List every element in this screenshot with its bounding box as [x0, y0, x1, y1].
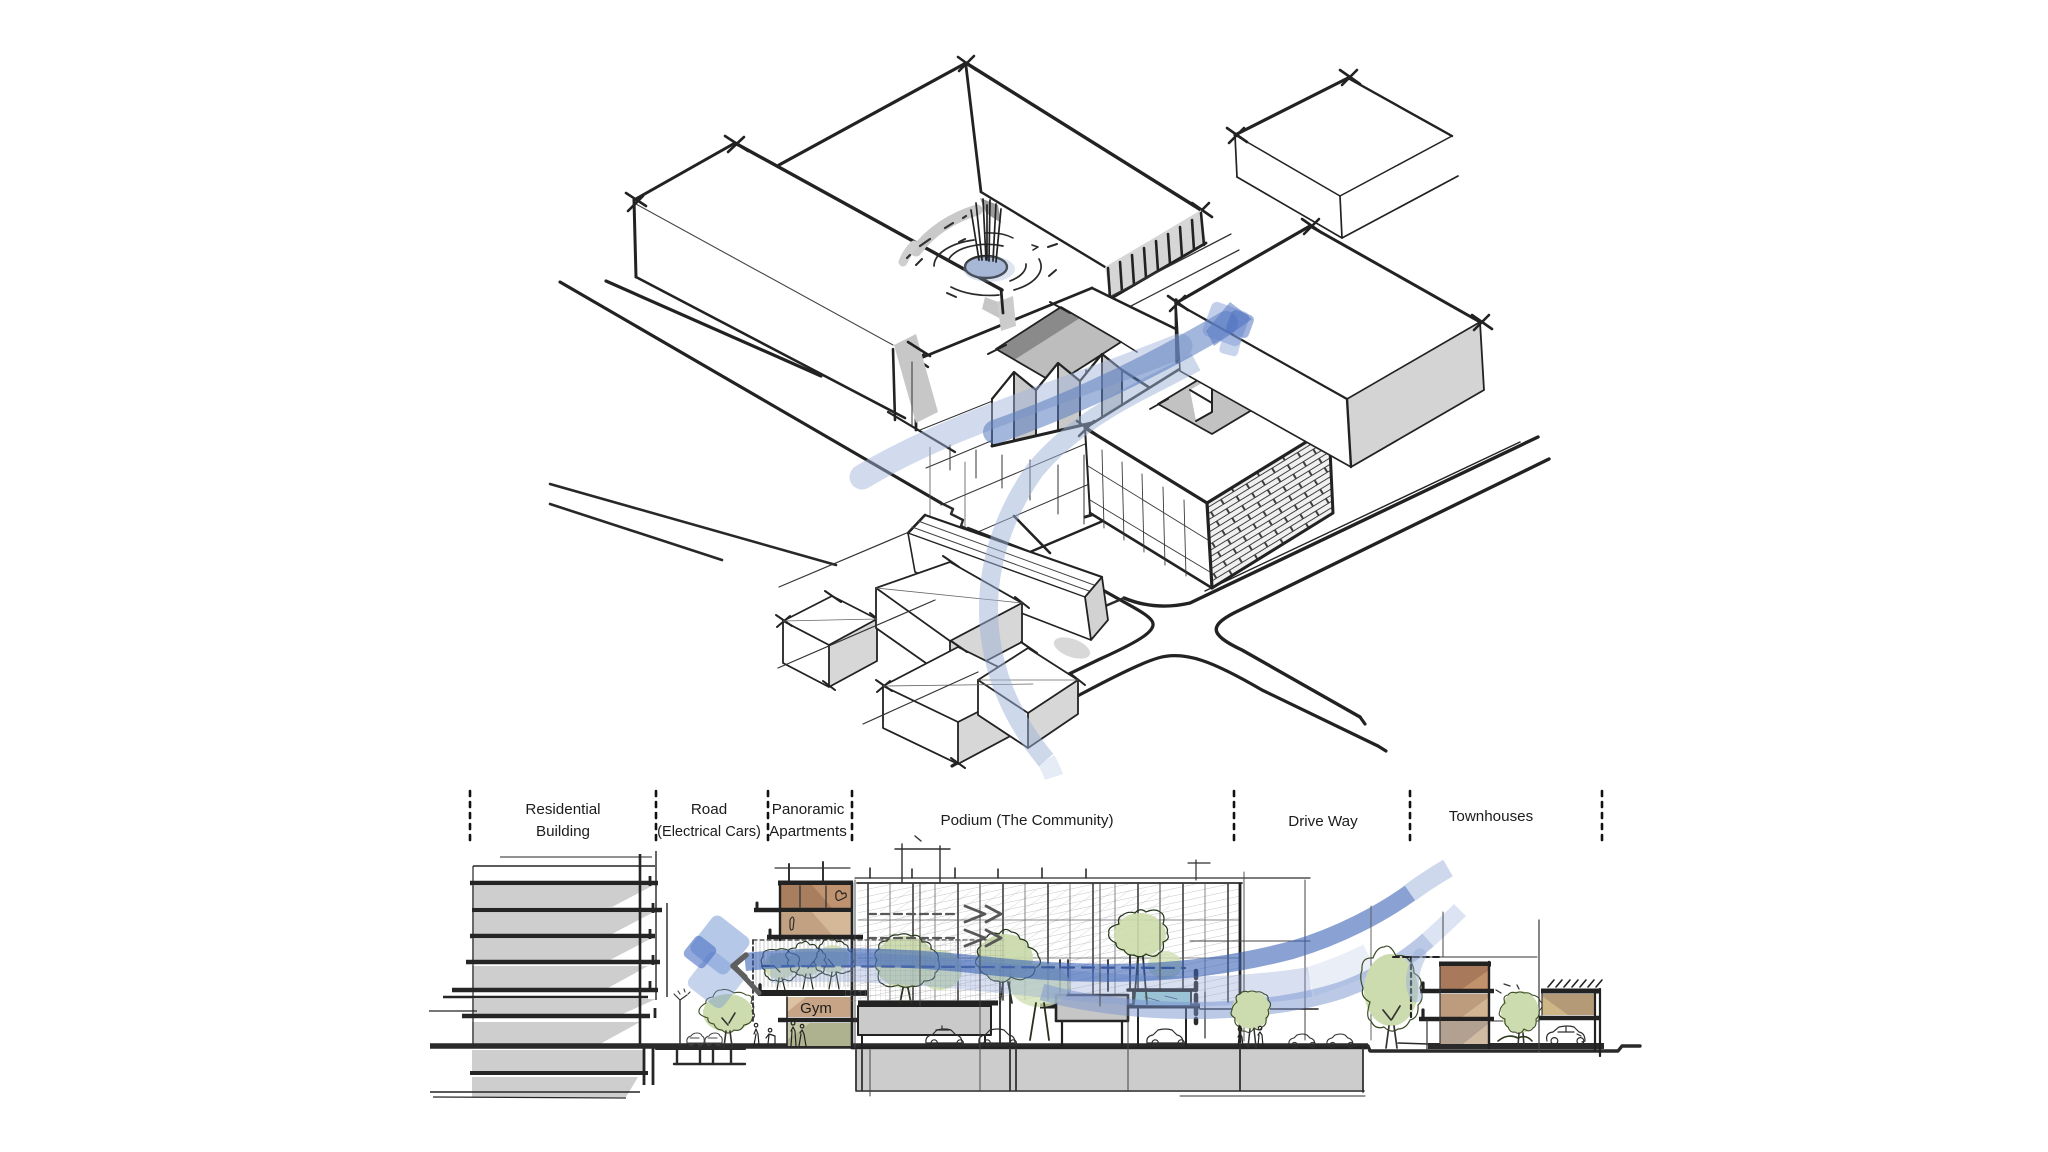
svg-text:Panoramic: Panoramic [772, 801, 845, 818]
svg-text:Road: Road [691, 801, 727, 818]
svg-text:Gym: Gym [800, 1000, 832, 1017]
svg-text:Building: Building [536, 823, 590, 840]
svg-text:Residential: Residential [525, 801, 600, 818]
svg-text:Apartments: Apartments [769, 823, 847, 840]
svg-text:Podium (The Community): Podium (The Community) [940, 812, 1113, 829]
svg-text:(Electrical Cars): (Electrical Cars) [657, 824, 761, 840]
svg-text:Townhouses: Townhouses [1449, 808, 1534, 825]
svg-text:Drive Way: Drive Way [1288, 813, 1358, 830]
